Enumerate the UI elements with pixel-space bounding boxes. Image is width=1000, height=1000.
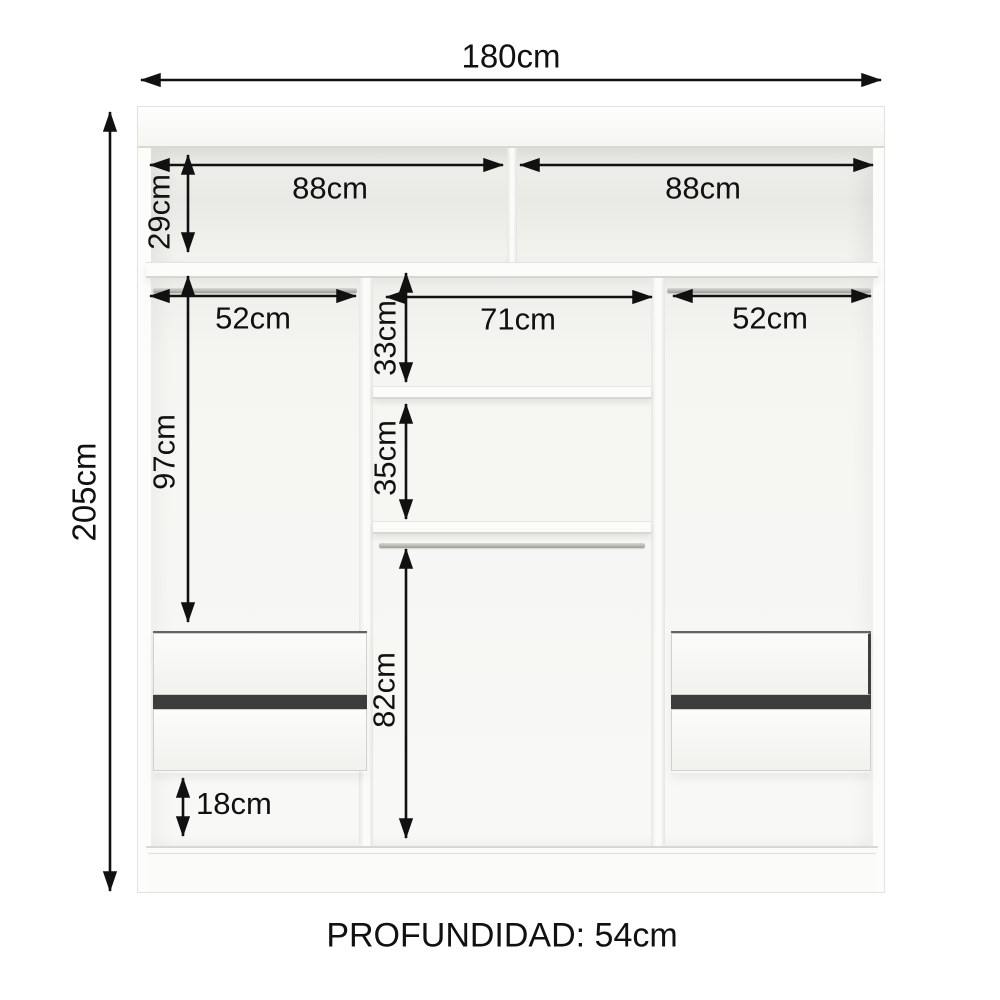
center-shelf-lower bbox=[373, 521, 651, 534]
dim-label-side-hanging-height: 97cm bbox=[149, 414, 180, 490]
wardrobe-dimension-diagram: 180cm 205cm 88cm 88cm 29cm 52cm 71cm 52c… bbox=[0, 0, 1000, 1000]
drawer bbox=[153, 633, 367, 695]
dim-label-top-section-height: 29cm bbox=[144, 174, 175, 250]
dim-label-center-lower-shelf-height: 35cm bbox=[370, 420, 401, 496]
drawer bbox=[153, 709, 367, 771]
drawer-unit-right bbox=[671, 631, 871, 773]
center-shelf-upper bbox=[373, 386, 651, 399]
hanging-rod-left bbox=[153, 288, 357, 293]
bottom-panel bbox=[146, 846, 878, 853]
full-width-shelf bbox=[146, 262, 878, 278]
drawer-gap bbox=[671, 695, 871, 709]
dim-label-center-hanging-height: 82cm bbox=[369, 652, 400, 728]
hanging-rod-right bbox=[667, 288, 871, 293]
drawer bbox=[671, 709, 871, 771]
dim-label-total-height: 205cm bbox=[68, 442, 101, 541]
drawer bbox=[671, 633, 871, 695]
dim-label-top-shelf-left: 88cm bbox=[292, 173, 368, 204]
depth-note: PROFUNDIDAD: 54cm bbox=[326, 917, 677, 956]
drawer-gap bbox=[153, 695, 367, 709]
top-panel bbox=[138, 107, 884, 148]
top-compartment-divider bbox=[507, 148, 517, 262]
hanging-rod-center bbox=[379, 543, 645, 548]
dim-label-left-column-width: 52cm bbox=[215, 303, 291, 334]
drawer-unit-left bbox=[153, 631, 367, 773]
dim-label-top-shelf-right: 88cm bbox=[665, 173, 741, 204]
right-vertical-divider bbox=[651, 278, 665, 846]
dim-label-center-column-width: 71cm bbox=[480, 304, 556, 335]
dim-label-center-upper-shelf-height: 33cm bbox=[370, 300, 401, 376]
dim-label-right-column-width: 52cm bbox=[732, 303, 808, 334]
dim-label-bottom-space-height: 18cm bbox=[196, 788, 272, 819]
plinth-base bbox=[148, 853, 876, 892]
wardrobe-body bbox=[137, 106, 885, 893]
dim-label-total-width: 180cm bbox=[461, 40, 560, 73]
